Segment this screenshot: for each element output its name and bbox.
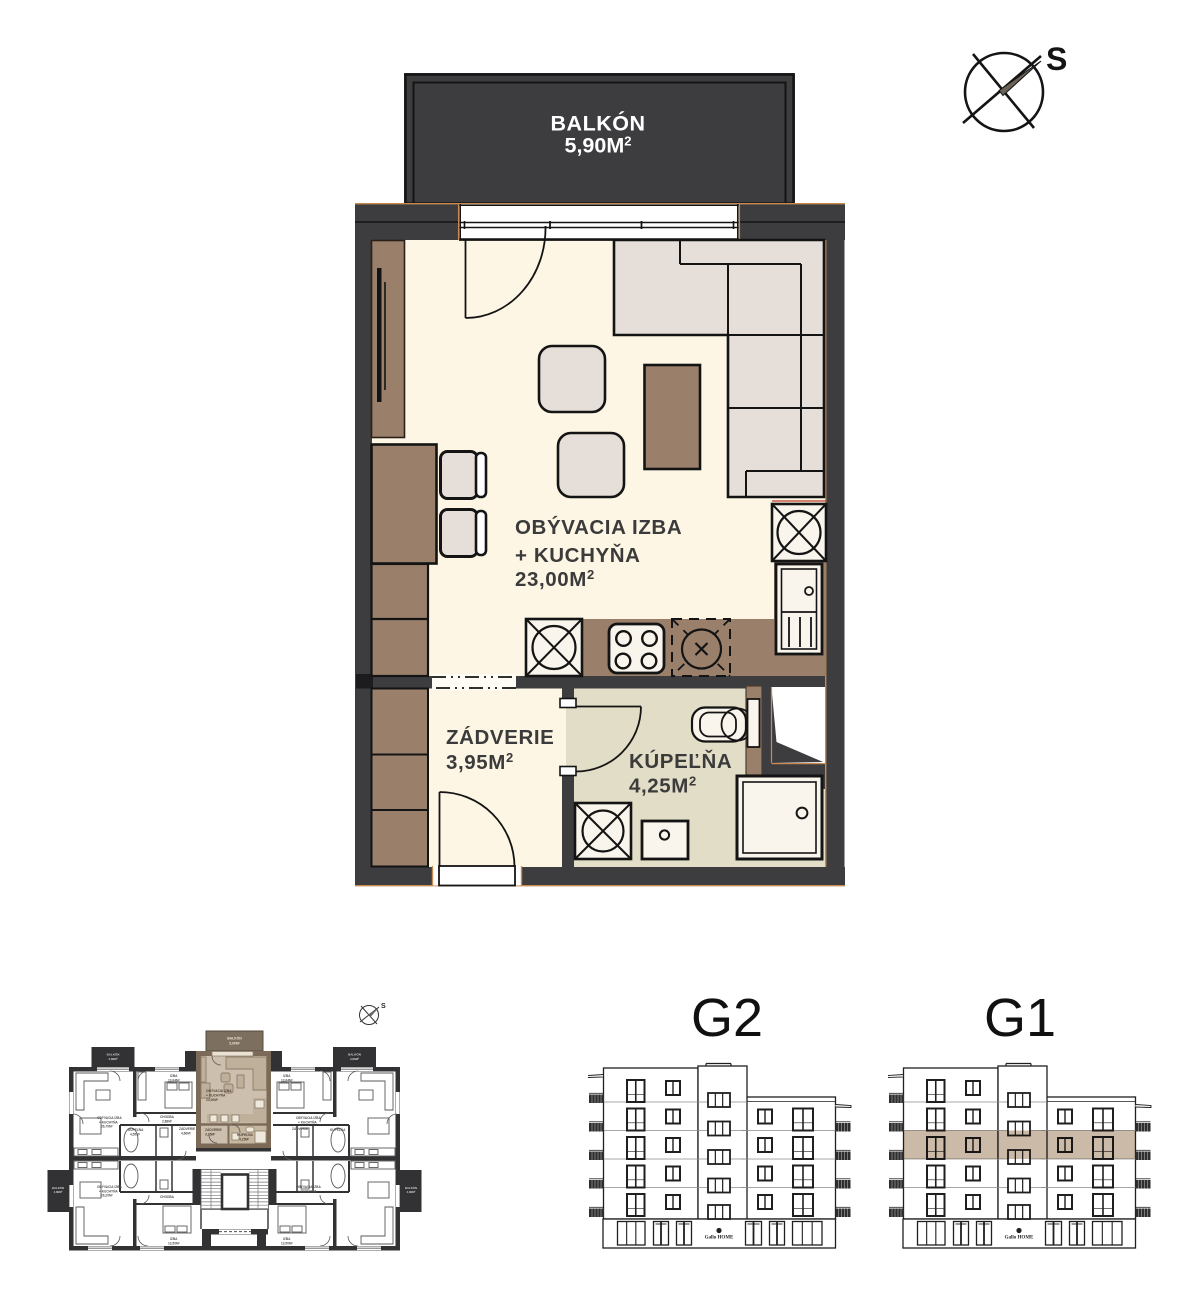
svg-text:4,89M²: 4,89M² [350, 1057, 359, 1061]
svg-text:26,70M²: 26,70M² [101, 1125, 113, 1129]
svg-text:ZÁDVERIE: ZÁDVERIE [179, 1126, 195, 1131]
svg-text:4,25M²: 4,25M² [239, 1138, 250, 1142]
svg-text:4,89M²: 4,89M² [54, 1190, 63, 1194]
svg-text:IZBA: IZBA [170, 1074, 178, 1078]
svg-text:OBÝVACIA IZBA: OBÝVACIA IZBA [296, 1115, 321, 1120]
svg-text:G1: G1 [984, 988, 1056, 1048]
svg-text:CHODBA: CHODBA [160, 1115, 175, 1119]
svg-text:KÚPEĽŇA: KÚPEĽŇA [237, 1132, 254, 1137]
svg-text:OBÝVACIA IZBA: OBÝVACIA IZBA [296, 1184, 321, 1189]
svg-text:4,55M²: 4,55M² [130, 1133, 140, 1137]
svg-text:S: S [381, 1003, 386, 1010]
svg-text:G2: G2 [691, 988, 763, 1048]
svg-text:+ KUCHYŇA: + KUCHYŇA [298, 1120, 317, 1125]
svg-text:26,20M²: 26,20M² [101, 1194, 113, 1198]
svg-text:ZÁDVERIE: ZÁDVERIE [446, 726, 554, 749]
svg-text:+ KUCHYŇA: + KUCHYŇA [515, 543, 641, 567]
svg-text:+ KUCHYŇA: + KUCHYŇA [206, 1093, 226, 1098]
svg-text:3,95M2: 3,95M2 [446, 750, 514, 774]
svg-text:ZÁDVERIE: ZÁDVERIE [205, 1127, 222, 1132]
svg-text:KÚPEĽŇA: KÚPEĽŇA [128, 1127, 144, 1132]
svg-text:2,88M²: 2,88M² [162, 1120, 172, 1124]
svg-text:BALKÓN: BALKÓN [107, 1052, 120, 1057]
svg-text:5,90M²: 5,90M² [229, 1042, 240, 1046]
svg-text:KÚPEĽŇA: KÚPEĽŇA [629, 749, 732, 773]
svg-text:CHODBA: CHODBA [160, 1195, 175, 1199]
svg-text:ZÁDVERIE: ZÁDVERIE [292, 1126, 308, 1131]
svg-text:3,95M²: 3,95M² [205, 1133, 216, 1137]
svg-text:S: S [1046, 41, 1067, 77]
svg-text:13,50M²: 13,50M² [281, 1242, 293, 1246]
svg-text:13,50M²: 13,50M² [168, 1242, 180, 1246]
svg-text:13,64M²: 13,64M² [168, 1079, 180, 1083]
svg-text:BALKÓN: BALKÓN [348, 1052, 361, 1057]
svg-text:13,64M²: 13,64M² [281, 1079, 293, 1083]
svg-text:4,89M²: 4,89M² [407, 1190, 416, 1194]
svg-text:4,66M²: 4,66M² [181, 1132, 191, 1136]
svg-text:+ KUCHYŇA: + KUCHYŇA [298, 1189, 317, 1194]
svg-text:BALKÓN: BALKÓN [227, 1036, 242, 1041]
svg-text:OBÝVACIA IZBA: OBÝVACIA IZBA [97, 1184, 122, 1189]
svg-text:IZBA: IZBA [170, 1237, 178, 1241]
svg-text:BALKÓN: BALKÓN [551, 111, 646, 136]
svg-text:Gallo HOME: Gallo HOME [705, 1236, 734, 1241]
svg-text:4,25M2: 4,25M2 [629, 774, 697, 798]
svg-text:OBÝVACIA IZBA: OBÝVACIA IZBA [206, 1088, 232, 1093]
svg-text:OBÝVACIA IZBA: OBÝVACIA IZBA [515, 515, 682, 539]
svg-text:IZBA: IZBA [283, 1074, 291, 1078]
svg-text:4,89M²: 4,89M² [108, 1057, 117, 1061]
svg-text:5,90M2: 5,90M2 [565, 134, 632, 158]
svg-text:KÚPEĽŇA: KÚPEĽŇA [330, 1127, 346, 1132]
svg-text:23,00M2: 23,00M2 [515, 567, 595, 591]
svg-text:23,00M²: 23,00M² [206, 1098, 219, 1102]
svg-text:IZBA: IZBA [283, 1237, 291, 1241]
svg-text:OBÝVACIA IZBA: OBÝVACIA IZBA [97, 1115, 122, 1120]
